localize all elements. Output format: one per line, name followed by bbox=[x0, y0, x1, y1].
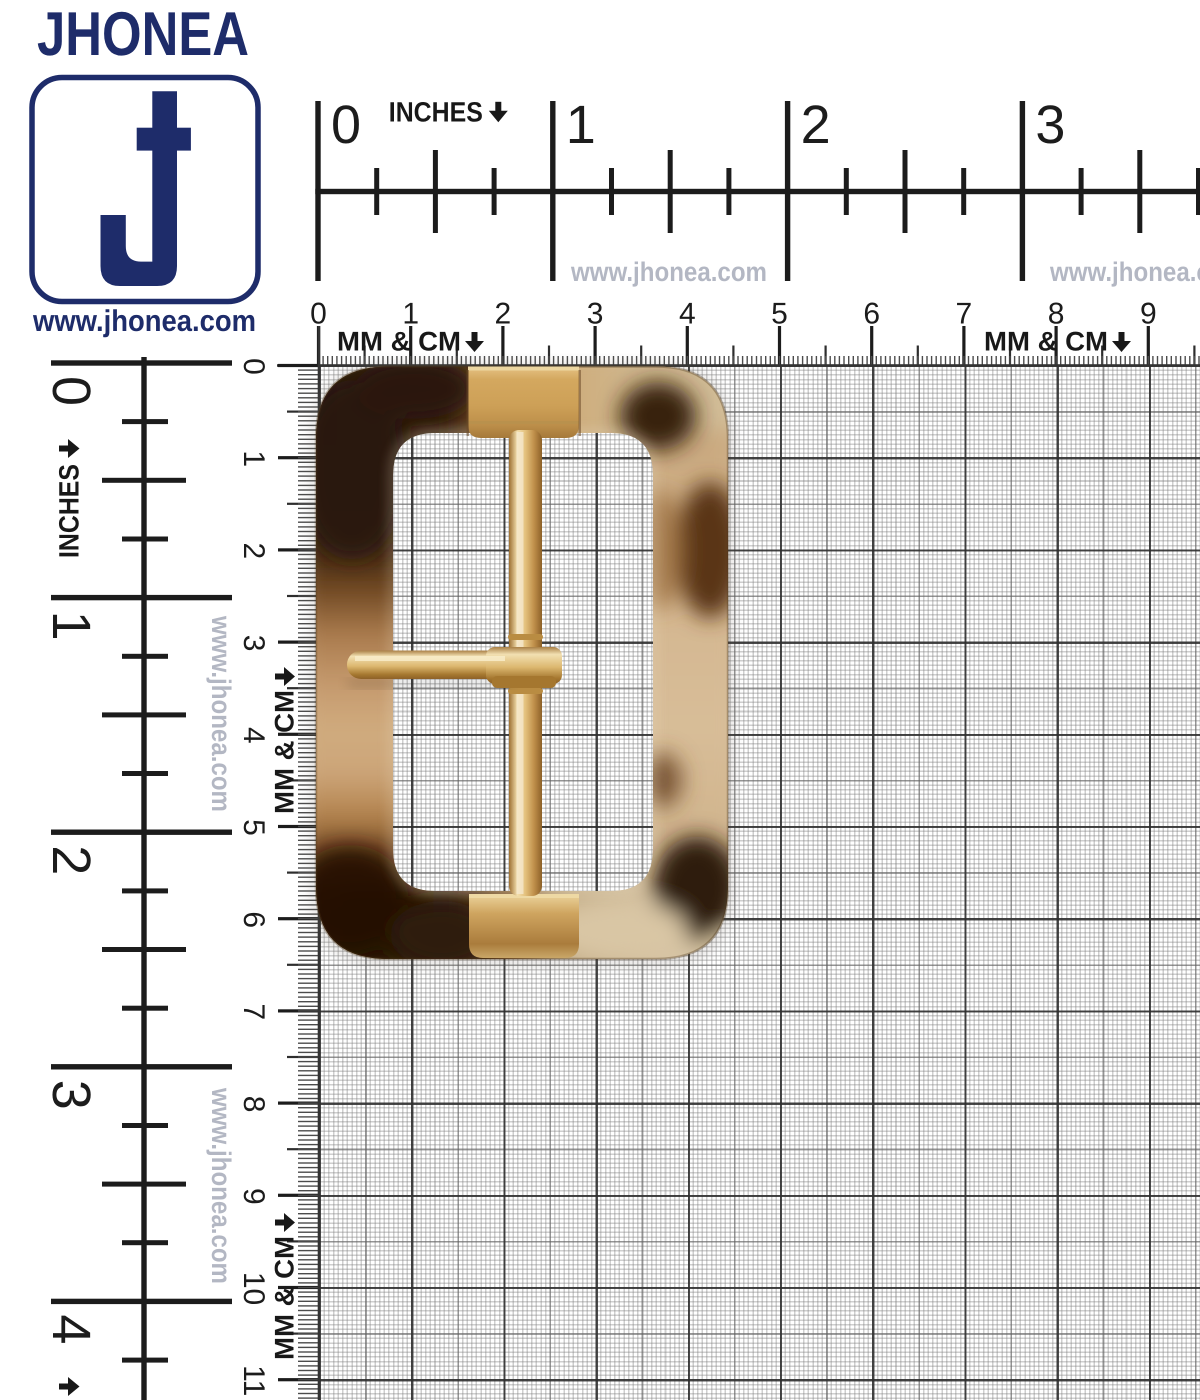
svg-text:2: 2 bbox=[495, 298, 512, 331]
svg-text:1: 1 bbox=[566, 95, 596, 155]
svg-text:3: 3 bbox=[237, 635, 270, 652]
svg-text:3: 3 bbox=[1035, 95, 1065, 155]
svg-text:4: 4 bbox=[679, 298, 696, 331]
svg-text:www.jhonea.com: www.jhonea.com bbox=[32, 305, 256, 338]
svg-text:9: 9 bbox=[237, 1188, 270, 1205]
svg-text:3: 3 bbox=[41, 1080, 101, 1110]
svg-text:2: 2 bbox=[801, 95, 831, 155]
svg-text:0: 0 bbox=[331, 95, 361, 155]
svg-text:1: 1 bbox=[237, 450, 270, 467]
svg-text:2: 2 bbox=[41, 845, 101, 875]
svg-text:0: 0 bbox=[310, 298, 327, 331]
svg-text:6: 6 bbox=[237, 911, 270, 928]
svg-text:5: 5 bbox=[237, 819, 270, 836]
svg-text:7: 7 bbox=[237, 1004, 270, 1021]
svg-text:3: 3 bbox=[587, 298, 604, 331]
svg-text:2: 2 bbox=[237, 543, 270, 560]
svg-text:9: 9 bbox=[1140, 298, 1157, 331]
svg-text:7: 7 bbox=[956, 298, 973, 331]
svg-text:4: 4 bbox=[41, 1314, 101, 1344]
svg-text:4: 4 bbox=[237, 727, 270, 744]
svg-text:1: 1 bbox=[41, 611, 101, 641]
svg-text:10: 10 bbox=[237, 1272, 270, 1305]
svg-text:JHONEA: JHONEA bbox=[37, 0, 249, 69]
svg-text:6: 6 bbox=[863, 298, 880, 331]
svg-text:11: 11 bbox=[237, 1365, 270, 1396]
svg-text:5: 5 bbox=[771, 298, 788, 331]
svg-text:0: 0 bbox=[41, 376, 101, 406]
svg-text:0: 0 bbox=[237, 358, 270, 375]
svg-text:8: 8 bbox=[237, 1096, 270, 1113]
